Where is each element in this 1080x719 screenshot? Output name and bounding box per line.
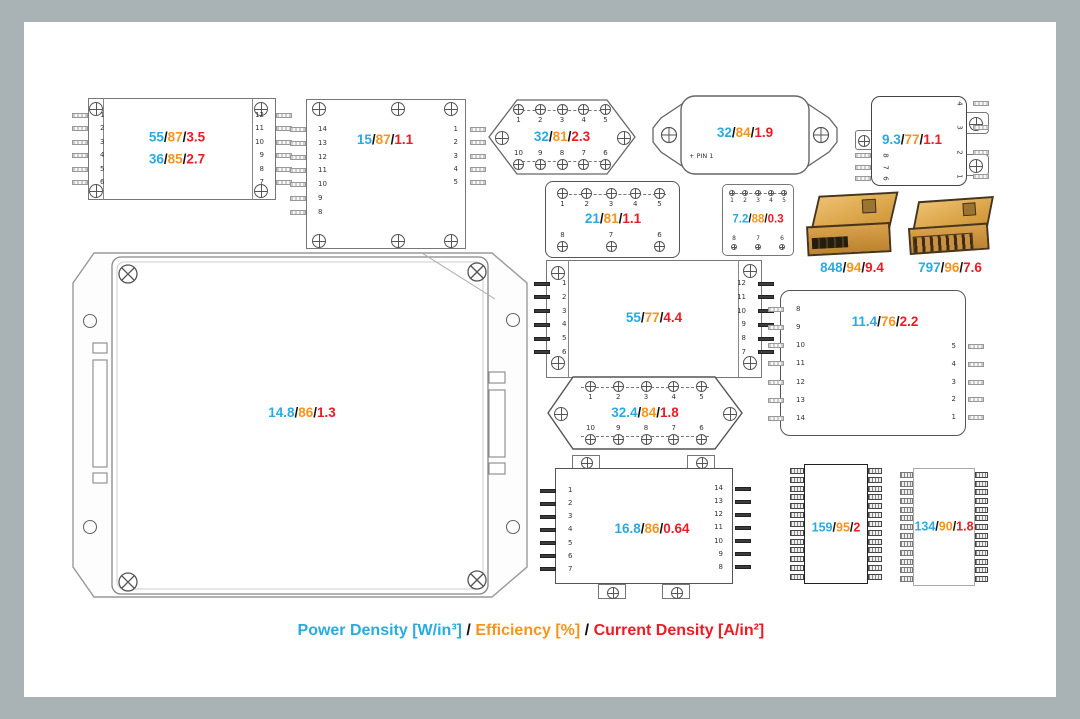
pin-label: 2 xyxy=(454,139,458,146)
screw-icon xyxy=(444,234,458,248)
pin-label: 4 xyxy=(100,152,104,159)
pin-lead-icon xyxy=(470,127,486,132)
pin-lead-icon xyxy=(290,127,306,132)
pin-lead-icon xyxy=(973,125,989,130)
pin-lead-icon xyxy=(768,343,784,348)
pin-label: 9 xyxy=(616,425,620,432)
pin: 7 xyxy=(755,232,761,250)
value-line: 36/85/2.7 xyxy=(149,149,205,171)
pin-lead-icon xyxy=(696,381,707,392)
pin: 13 xyxy=(290,140,334,147)
pin: 4 xyxy=(72,152,116,159)
ic-pin-icon xyxy=(900,507,913,513)
pin-label: 5 xyxy=(699,394,703,401)
pin-label: 5 xyxy=(952,343,956,350)
pin-label: 7 xyxy=(672,425,676,432)
pin-label: 4 xyxy=(582,117,586,124)
pin-label: 2 xyxy=(743,198,747,204)
pin-label: 4 xyxy=(562,321,566,328)
pin-lead-icon xyxy=(72,140,88,145)
pin: 7 xyxy=(668,421,679,445)
pin: 6 xyxy=(779,232,785,250)
pin-label: 6 xyxy=(100,179,104,186)
legend-separator: / xyxy=(580,622,593,639)
pin-label: 8 xyxy=(644,425,648,432)
pin-lead-icon xyxy=(290,182,306,187)
module-values: 16.8/86/0.64 xyxy=(614,518,689,540)
pin: 5 xyxy=(72,166,116,173)
pin-label: 10 xyxy=(796,342,805,349)
pin: 5 xyxy=(534,335,580,342)
pin-lead-icon xyxy=(654,188,665,199)
pin: 1 xyxy=(955,173,989,180)
ic-pin-icon xyxy=(975,576,988,582)
ic-pin-icon xyxy=(790,477,804,483)
pin: 9 xyxy=(707,551,751,558)
pin: 2 xyxy=(742,190,748,206)
pin-label: 2 xyxy=(538,117,542,124)
pin-label: 3 xyxy=(644,394,648,401)
pin: 8 xyxy=(557,226,568,252)
screw-icon xyxy=(89,184,103,198)
ic-pin-icon xyxy=(790,574,804,580)
pin-lead-icon xyxy=(968,415,984,420)
screw-icon xyxy=(391,102,405,116)
ic-pin-icon xyxy=(790,503,804,509)
pin-lead-icon xyxy=(72,113,88,118)
pin-label: 7 xyxy=(260,179,264,186)
pin-label: 13 xyxy=(318,140,327,147)
pin-label: 9 xyxy=(796,324,800,331)
mount-hole-icon xyxy=(617,131,631,145)
pin: 3 xyxy=(557,104,568,128)
pin: 7 xyxy=(540,566,580,573)
pin: 14 xyxy=(290,126,334,133)
pin-label: 1 xyxy=(100,112,104,119)
mount-hole-icon xyxy=(495,131,509,145)
pin: 3 xyxy=(534,308,580,315)
pin-label: 2 xyxy=(616,394,620,401)
ic-pin-icon xyxy=(975,541,988,547)
pin: 12 xyxy=(248,112,292,119)
pin-lead-icon xyxy=(585,381,596,392)
pin-label: 3 xyxy=(756,198,760,204)
pin: 7 xyxy=(855,164,889,171)
pin-lead-icon xyxy=(613,381,624,392)
legend-caption: Power Density [W/in³] / Efficiency [%] /… xyxy=(6,604,1038,658)
pin-label: 6 xyxy=(603,150,607,157)
pin-lead-icon xyxy=(758,282,774,286)
pin: 2 xyxy=(938,396,984,403)
chassis-outline xyxy=(68,250,532,602)
module-values: 32.4/84/1.8 xyxy=(611,402,679,424)
module-values: 32/84/1.9 xyxy=(717,122,773,144)
photo-label-strip xyxy=(812,236,849,249)
pin-label: 10 xyxy=(255,139,264,146)
left-pin-column: 141312111098 xyxy=(290,126,334,216)
ic-pin-icon xyxy=(868,494,882,500)
module-values: 14.8/86/1.3 xyxy=(268,402,336,424)
pin-label: 5 xyxy=(454,179,458,186)
pin-label: 9 xyxy=(260,152,264,159)
pin-label: 11 xyxy=(318,167,327,174)
ic-pin-icon xyxy=(868,503,882,509)
pin-label: 12 xyxy=(318,154,327,161)
right-pin-column: 12345 xyxy=(442,126,486,186)
pin-lead-icon xyxy=(768,325,784,330)
pin-label: 6 xyxy=(657,232,661,239)
screw-icon xyxy=(312,102,326,116)
pin: 11 xyxy=(290,167,334,174)
screw-icon xyxy=(444,102,458,116)
pin-label: 7 xyxy=(582,150,586,157)
pin-label: 7 xyxy=(882,165,889,169)
pin-lead-icon xyxy=(540,541,556,545)
module-tabbed-package: 876 4321 9.3/77/1.1 xyxy=(855,90,989,190)
pin-label: 8 xyxy=(742,335,746,342)
pin-lead-icon xyxy=(534,309,550,313)
pin-label: 12 xyxy=(255,112,264,119)
pin-lead-icon xyxy=(540,489,556,493)
pin: 1 xyxy=(442,126,486,133)
pin-label: 1 xyxy=(955,174,962,178)
module-values: 55/87/3.5 36/85/2.7 xyxy=(149,127,205,172)
pin-lead-icon xyxy=(470,180,486,185)
pin-lead-icon xyxy=(534,323,550,327)
module-winged-oval: + PIN 1 32/84/1.9 xyxy=(645,94,845,176)
screw-icon xyxy=(551,266,565,280)
pin-label: 8 xyxy=(260,166,264,173)
pin: 10 xyxy=(585,421,596,445)
pin-lead-icon xyxy=(968,344,984,349)
pin: 1 xyxy=(534,280,580,287)
pin-lead-icon xyxy=(973,101,989,106)
screw-icon xyxy=(254,184,268,198)
pin-label: 11 xyxy=(737,294,746,301)
pin-label: 4 xyxy=(672,394,676,401)
screw-icon xyxy=(743,356,757,370)
ic-pin-icon xyxy=(868,477,882,483)
pin: 7 xyxy=(248,179,292,186)
pin-lead-icon xyxy=(735,513,751,517)
pin: 5 xyxy=(442,179,486,186)
pin-lead-icon xyxy=(613,434,624,445)
pin-lead-icon xyxy=(668,381,679,392)
page-frame: 123456 121110987 55/87/3.5 36/85/2.7 141… xyxy=(0,0,1080,719)
pin-label: 10 xyxy=(514,150,523,157)
module-values: 134/90/1.8 xyxy=(914,517,973,538)
pin: 5 xyxy=(696,381,707,405)
pin-lead-icon xyxy=(606,188,617,199)
pin-lead-icon xyxy=(585,434,596,445)
module-values: 15/87/1.1 xyxy=(357,129,413,151)
pin-lead-icon xyxy=(696,434,707,445)
ic-pin-icon xyxy=(790,565,804,571)
photo-chip xyxy=(962,202,976,216)
pin: 14 xyxy=(707,485,751,492)
pin: 10 xyxy=(768,342,814,349)
pin: 1 xyxy=(729,190,735,206)
pin-lead-icon xyxy=(735,565,751,569)
pin-lead-icon xyxy=(781,190,787,196)
pin-label: 9 xyxy=(742,321,746,328)
pin: 6 xyxy=(654,226,665,252)
left-pin-column: 876 xyxy=(855,152,889,182)
pin-lead-icon xyxy=(654,241,665,252)
pin-lead-icon xyxy=(735,526,751,530)
pin-lead-icon xyxy=(768,416,784,421)
pin: 8 xyxy=(707,564,751,571)
pin-lead-icon xyxy=(768,361,784,366)
pin-label: 8 xyxy=(318,209,322,216)
screw-icon xyxy=(607,587,619,599)
pin-lead-icon xyxy=(641,381,652,392)
pin-lead-icon xyxy=(72,153,88,158)
screw-icon xyxy=(312,234,326,248)
pin: 11 xyxy=(768,360,814,367)
pin: 4 xyxy=(540,526,580,533)
pin-lead-icon xyxy=(557,188,568,199)
pin-lead-icon xyxy=(557,241,568,252)
pin: 10 xyxy=(707,538,751,545)
pin-label: 1 xyxy=(588,394,592,401)
pin-label: 8 xyxy=(882,153,889,157)
ic-pin-icon xyxy=(900,533,913,539)
ic-pin-icon xyxy=(900,489,913,495)
pin: 5 xyxy=(781,190,787,206)
left-pin-column: 1234567 xyxy=(540,487,580,573)
ic-pin-icon xyxy=(975,567,988,573)
value-line: 55/87/3.5 xyxy=(149,127,205,149)
screw-icon xyxy=(391,234,405,248)
photo-module-1-values: 848/94/9.4 xyxy=(820,257,884,279)
ic-pin-icon xyxy=(975,489,988,495)
pin-lead-icon xyxy=(742,190,748,196)
ic-pin-icon xyxy=(868,547,882,553)
ic-pin-icon xyxy=(868,486,882,492)
pin-label: 6 xyxy=(562,349,566,356)
pin-label: 7 xyxy=(568,566,572,573)
pin-lead-icon xyxy=(630,188,641,199)
pin-label: 13 xyxy=(796,397,805,404)
right-ic-pins xyxy=(868,468,882,580)
pin: 1 xyxy=(513,104,524,128)
ic-pin-icon xyxy=(975,550,988,556)
pin-lead-icon xyxy=(606,241,617,252)
ic-pin-icon xyxy=(975,498,988,504)
pin: 9 xyxy=(768,324,814,331)
pin: 6 xyxy=(696,421,707,445)
pin-lead-icon xyxy=(600,104,611,115)
pin-label: 1 xyxy=(952,414,956,421)
pin-lead-icon xyxy=(540,567,556,571)
pin-label: 12 xyxy=(737,280,746,287)
pin-label: 1 xyxy=(568,487,572,494)
pin-label: 2 xyxy=(952,396,956,403)
bottom-pin-row: 109876 xyxy=(585,421,707,445)
pin-label: 6 xyxy=(780,236,784,242)
pin-lead-icon xyxy=(731,244,737,250)
screw-icon xyxy=(858,135,870,147)
pin: 10 xyxy=(248,139,292,146)
pin: 5 xyxy=(938,343,984,350)
pin: 4 xyxy=(442,166,486,173)
ic-pin-icon xyxy=(790,547,804,553)
pin-label: 5 xyxy=(100,166,104,173)
right-pin-column: 121110987 xyxy=(248,112,292,186)
module-tabbed-brick: 1234567 141312111098 16.8/86/0.64 xyxy=(545,455,765,601)
pin-lead-icon xyxy=(729,190,735,196)
pin: 8 xyxy=(768,306,814,313)
pin: 3 xyxy=(755,190,761,206)
ic-pin-icon xyxy=(790,530,804,536)
pin-label: 5 xyxy=(562,335,566,342)
pin-lead-icon xyxy=(290,196,306,201)
pin-label: 4 xyxy=(952,361,956,368)
pin-label: 4 xyxy=(454,166,458,173)
ic-pin-icon xyxy=(900,567,913,573)
pin-label: 8 xyxy=(796,306,800,313)
pin-label: 14 xyxy=(714,485,723,492)
pin-label: 2 xyxy=(568,500,572,507)
pin: 1 xyxy=(557,188,568,212)
pin-lead-icon xyxy=(768,380,784,385)
pin: 1 xyxy=(938,414,984,421)
left-pin-column: 123456 xyxy=(534,280,580,356)
pin-label: 8 xyxy=(560,150,564,157)
legend-power-density: Power Density [W/in³] xyxy=(298,622,462,639)
pin-lead-icon xyxy=(540,554,556,558)
pin1-marker: + PIN 1 xyxy=(689,152,713,160)
ic-pin-icon xyxy=(790,539,804,545)
pin-label: 5 xyxy=(782,198,786,204)
pin-label: 10 xyxy=(318,181,327,188)
pin: 6 xyxy=(855,175,889,182)
pin-lead-icon xyxy=(534,282,550,286)
pin: 2 xyxy=(540,500,580,507)
pin: 5 xyxy=(540,540,580,547)
pin-label: 13 xyxy=(714,498,723,505)
pin-lead-icon xyxy=(534,295,550,299)
pin-label: 12 xyxy=(796,379,805,386)
pin-lead-icon xyxy=(470,167,486,172)
pin-lead-icon xyxy=(735,552,751,556)
pin: 5 xyxy=(654,188,665,212)
pin-label: 7 xyxy=(609,232,613,239)
ic-pin-icon xyxy=(975,507,988,513)
module-hexagon-middle: 12345 109876 32.4/84/1.8 xyxy=(545,376,745,450)
pin-lead-icon xyxy=(534,337,550,341)
ic-pin-icon xyxy=(868,574,882,580)
pin-label: 1 xyxy=(560,201,564,208)
ic-pin-icon xyxy=(868,556,882,562)
pin-label: 7 xyxy=(756,236,760,242)
pin-label: 8 xyxy=(560,232,564,239)
module-flanged-brick-1: 123456 121110987 55/87/3.5 36/85/2.7 xyxy=(72,96,292,202)
pin: 6 xyxy=(540,553,580,560)
pin-label: 1 xyxy=(454,126,458,133)
pin-label: 6 xyxy=(882,176,889,180)
pin-lead-icon xyxy=(470,140,486,145)
pin-lead-icon xyxy=(540,528,556,532)
pin-lead-icon xyxy=(578,104,589,115)
pin: 12 xyxy=(290,154,334,161)
legend-efficiency: Efficiency [%] xyxy=(475,622,580,639)
pin-lead-icon xyxy=(578,159,589,170)
ic-pin-icon xyxy=(900,541,913,547)
pin-label: 3 xyxy=(955,126,962,130)
pin: 6 xyxy=(534,349,580,356)
pin: 2 xyxy=(72,125,116,132)
pin-label: 11 xyxy=(255,125,264,132)
pin-lead-icon xyxy=(535,159,546,170)
pin: 9 xyxy=(535,146,546,170)
diagram-canvas: 123456 121110987 55/87/3.5 36/85/2.7 141… xyxy=(24,22,1056,697)
pin: 8 xyxy=(557,146,568,170)
screw-icon xyxy=(671,587,683,599)
pin-label: 1 xyxy=(730,198,734,204)
pin-label: 3 xyxy=(952,379,956,386)
top-pin-row: 12345 xyxy=(513,104,611,128)
ic-pin-icon xyxy=(868,530,882,536)
pin-lead-icon xyxy=(755,244,761,250)
pin: 2 xyxy=(442,139,486,146)
mount-hole-icon xyxy=(554,407,568,421)
pin-lead-icon xyxy=(557,159,568,170)
pin: 4 xyxy=(534,321,580,328)
pin-label: 4 xyxy=(769,198,773,204)
pin-label: 1 xyxy=(562,280,566,287)
pin-label: 10 xyxy=(737,308,746,315)
screw-icon xyxy=(551,356,565,370)
ic-pin-icon xyxy=(975,524,988,530)
pin: 1 xyxy=(540,487,580,494)
pin-label: 8 xyxy=(719,564,723,571)
pin-lead-icon xyxy=(973,174,989,179)
pin: 3 xyxy=(938,379,984,386)
ic-pin-icon xyxy=(900,481,913,487)
module-values: 9.3/77/1.1 xyxy=(882,129,942,151)
ic-pin-icon xyxy=(790,521,804,527)
pin-lead-icon xyxy=(855,176,871,181)
pin-label: 3 xyxy=(568,513,572,520)
ic-pin-icon xyxy=(900,576,913,582)
pin-label: 12 xyxy=(714,511,723,518)
legend-separator: / xyxy=(462,622,475,639)
ic-pin-icon xyxy=(900,550,913,556)
pin: 4 xyxy=(938,361,984,368)
module-large-chassis: 14.8/86/1.3 xyxy=(68,250,532,602)
pin-label: 3 xyxy=(562,308,566,315)
module-ic-package-2: 134/90/1.8 xyxy=(900,466,988,590)
pin-label: 9 xyxy=(318,195,322,202)
pin: 2 xyxy=(535,104,546,128)
pin: 8 xyxy=(731,232,737,250)
bottom-pin-row: 876 xyxy=(731,232,785,250)
mount-hole-icon xyxy=(723,407,737,421)
module-values: 159/95/2 xyxy=(812,518,861,539)
pin: 6 xyxy=(600,146,611,170)
ic-pin-icon xyxy=(868,468,882,474)
pin: 12 xyxy=(768,379,814,386)
pin-label: 14 xyxy=(796,415,805,422)
ic-pin-icon xyxy=(790,556,804,562)
pin-label: 3 xyxy=(454,153,458,160)
pin: 12 xyxy=(728,280,774,287)
ic-pin-icon xyxy=(868,512,882,518)
pin-lead-icon xyxy=(470,154,486,159)
pin: 8 xyxy=(248,166,292,173)
